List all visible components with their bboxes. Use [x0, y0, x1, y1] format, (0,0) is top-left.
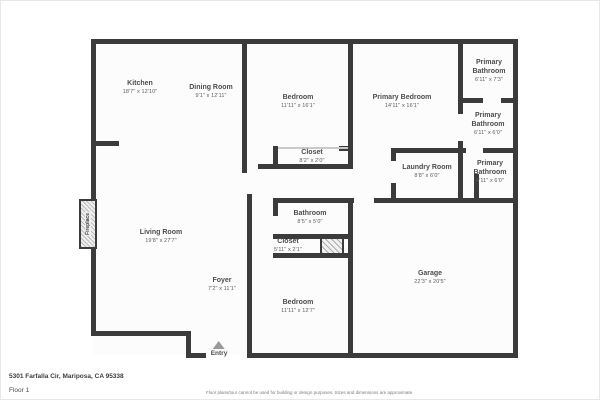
room-label-kitchen: Kitchen18'7" x 12'10" [123, 80, 158, 96]
wall-segment [91, 39, 96, 336]
room-label-closet-1: Closet8'2" x 2'0" [299, 149, 324, 165]
room-name: Primary Bathroom [465, 59, 513, 77]
wall-segment [242, 39, 247, 173]
room-label-living-room: Living Room19'8" x 27'7" [140, 229, 182, 245]
wall-segment [391, 148, 396, 161]
room-name: Foyer [208, 277, 236, 286]
wall-segment [91, 141, 119, 146]
property-address: 5301 Farfalla Cir, Mariposa, CA 95338 [9, 373, 124, 380]
room-dimensions: 6'11" x 6'0" [464, 129, 512, 136]
room-label-bedroom-2: Bedroom11'11" x 12'7" [281, 299, 315, 315]
room-label-bathroom: Bathroom8'5" x 5'0" [293, 210, 326, 226]
room-label-bedroom-1: Bedroom11'11" x 16'1" [281, 94, 315, 110]
wall-segment [273, 203, 278, 216]
room-name: Bedroom [281, 299, 315, 308]
room-dimensions: 8'8" x 6'0" [402, 173, 451, 180]
room-name: Laundry Room [402, 164, 451, 173]
room-dimensions: 5'11" x 2'1" [274, 247, 302, 254]
room-label-foyer: Foyer7'2" x 11'1" [208, 277, 236, 293]
room-name: Living Room [140, 229, 182, 238]
room-label-primary-bedroom: Primary Bedroom14'11" x 16'1" [373, 94, 432, 110]
wall-segment [348, 198, 353, 358]
wall-segment [247, 353, 518, 358]
room-label-garage: Garage22'3" x 20'5" [414, 270, 445, 286]
wall-segment [273, 198, 354, 203]
room-label-closet-2: Closet5'11" x 2'1" [274, 238, 302, 254]
room-name: Garage [414, 270, 445, 279]
room-dimensions: 11'11" x 16'1" [281, 103, 315, 110]
room-name: Closet [274, 238, 302, 247]
wall-segment [91, 331, 191, 336]
room-label-primary-bathroom-3: Primary Bathroom6'11" x 6'0" [466, 160, 514, 184]
room-dimensions: 6'11" x 6'0" [466, 177, 514, 184]
wall-segment [483, 148, 518, 153]
room-dimensions: 11'11" x 12'7" [281, 308, 315, 315]
wall-segment [391, 148, 463, 153]
room-name: Bathroom [293, 210, 326, 219]
wall-segment [458, 148, 466, 153]
wall-segment [501, 98, 518, 103]
room-dimensions: 7'2" x 11'1" [208, 286, 236, 293]
wall-segment [458, 98, 483, 103]
room-name: Primary Bathroom [466, 160, 514, 178]
room-dimensions: 8'2" x 2'0" [299, 158, 324, 165]
room-dimensions: 18'7" x 12'10" [123, 89, 158, 96]
wall-segment [93, 39, 518, 44]
room-name: Primary Bedroom [373, 94, 432, 103]
room-dimensions: 19'8" x 27'7" [140, 238, 182, 245]
room-name: Bedroom [281, 94, 315, 103]
room-label-laundry-room: Laundry Room8'8" x 6'0" [402, 164, 451, 180]
entry-marker: Entry [211, 341, 228, 357]
room-label-primary-bathroom-1: Primary Bathroom6'11" x 7'3" [465, 59, 513, 83]
entry-label: Entry [211, 350, 228, 357]
room-name: Closet [299, 149, 324, 158]
room-dimensions: 9'1" x 12'11" [189, 93, 233, 100]
room-label-dining-room: Dining Room9'1" x 12'11" [189, 84, 233, 100]
wall-segment [374, 198, 518, 203]
fireplace-hatch: Fireplace [79, 199, 97, 249]
floorplan-page: Kitchen18'7" x 12'10"Dining Room9'1" x 1… [0, 0, 600, 400]
floor-indicator: Floor 1 [9, 387, 29, 394]
room-name: Dining Room [189, 84, 233, 93]
entry-arrow-icon [213, 341, 225, 349]
fireplace-label: Fireplace [85, 212, 91, 236]
room-dimensions: 6'11" x 7'3" [465, 76, 513, 83]
room-name: Kitchen [123, 80, 158, 89]
room-dimensions: 8'5" x 5'0" [293, 219, 326, 226]
room-dimensions: 22'3" x 20'5" [414, 279, 445, 286]
wall-segment [391, 183, 396, 198]
room-dimensions: 14'11" x 16'1" [373, 103, 432, 110]
room-name: Primary Bathroom [464, 112, 512, 130]
disclaimer-text: Floor plans/tour cannot be used for buil… [206, 390, 466, 395]
wall-segment [247, 194, 252, 358]
utility-hatch [320, 237, 344, 255]
wall-segment [186, 353, 206, 358]
room-label-primary-bathroom-2: Primary Bathroom6'11" x 6'0" [464, 112, 512, 136]
